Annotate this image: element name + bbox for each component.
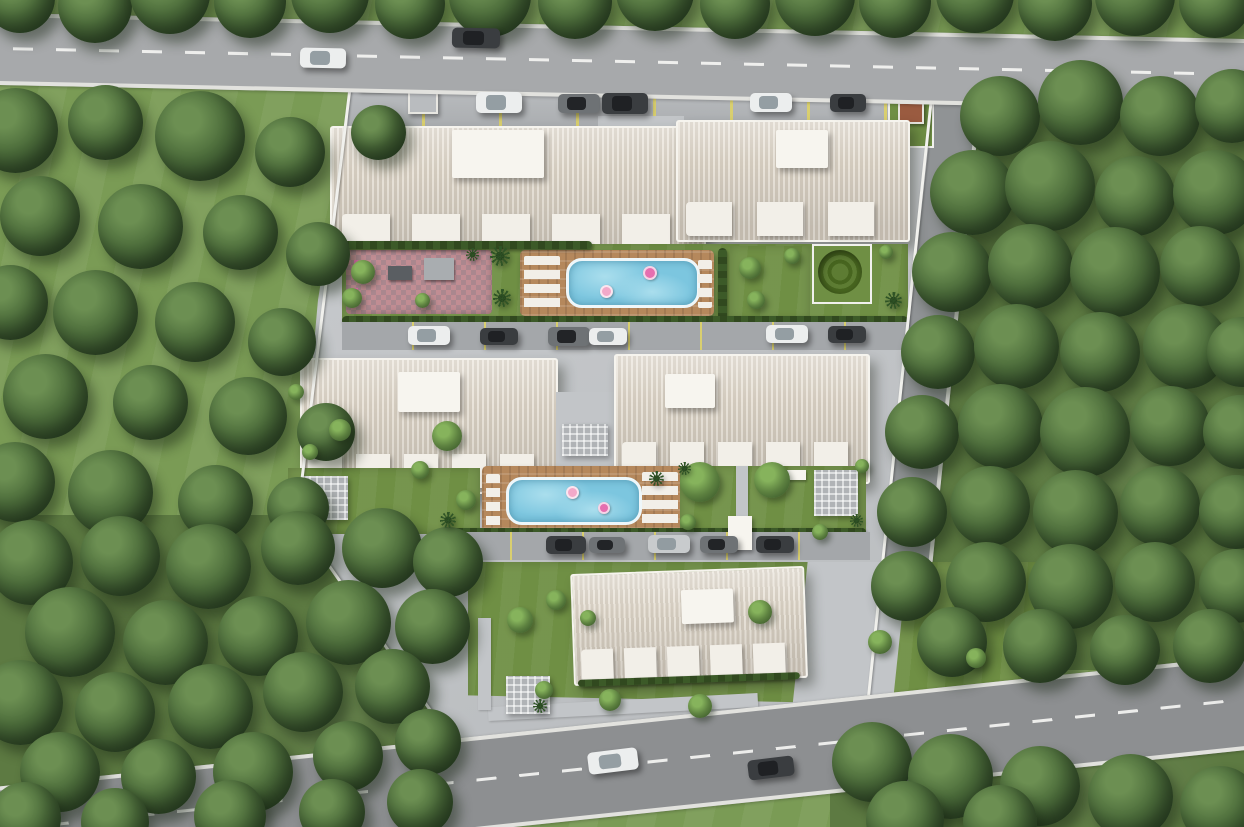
pool-float <box>600 285 613 298</box>
aerial-site-render <box>0 0 1244 827</box>
pool-float <box>566 486 579 499</box>
pool-float <box>643 266 657 280</box>
pool-float <box>598 502 610 514</box>
floats-layer <box>0 0 1244 827</box>
